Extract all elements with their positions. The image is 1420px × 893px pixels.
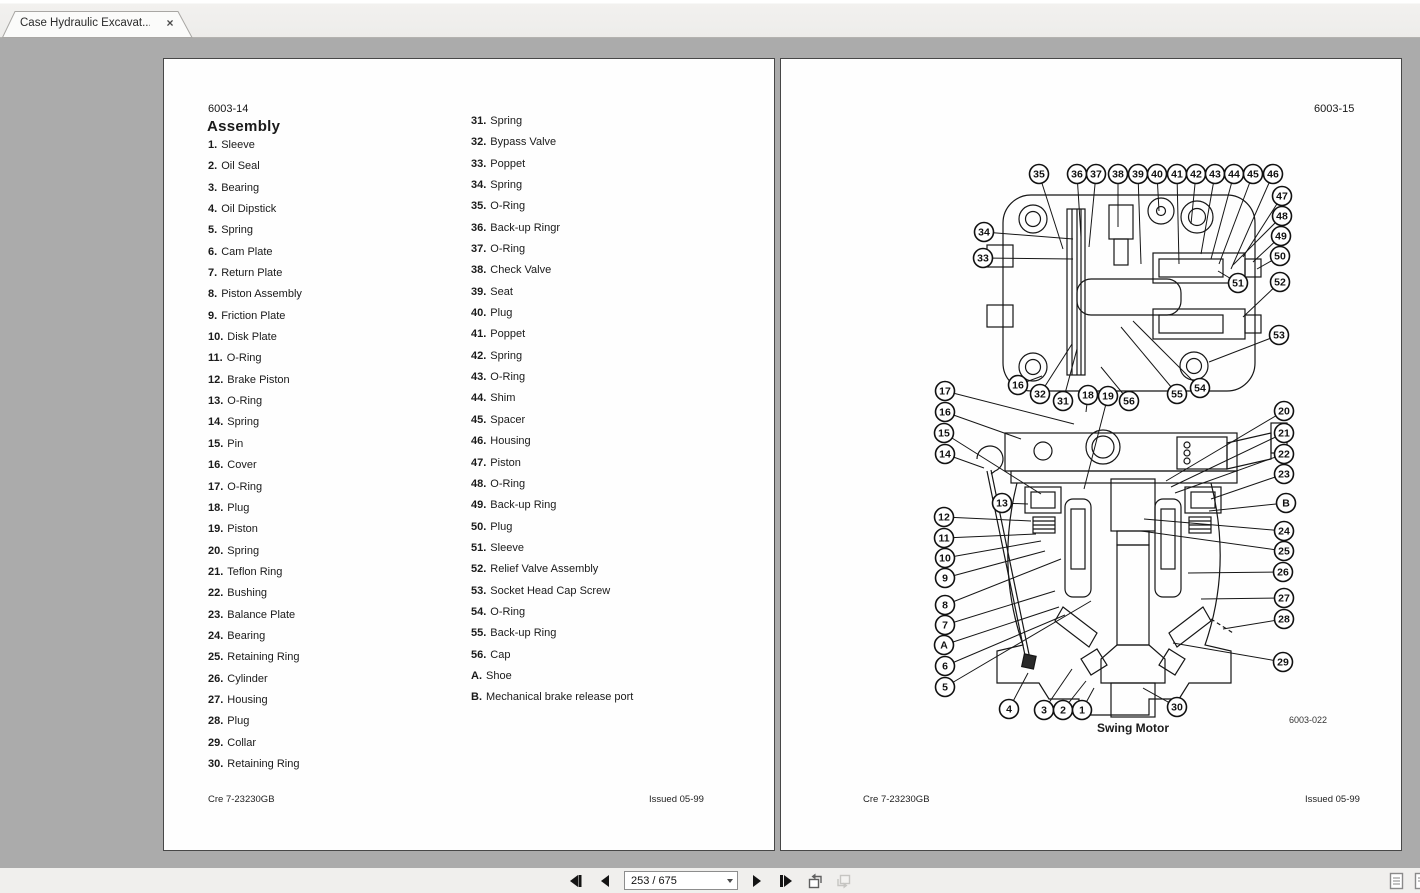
part-number: 3. [208,182,217,194]
callout-label: 6 [942,661,948,673]
part-label: Sleeve [490,542,524,554]
callout-label: 32 [1034,389,1046,401]
part-number: 46. [471,435,486,447]
part-item: 23.Balance Plate [208,609,302,630]
part-label: Plug [227,502,249,514]
part-number: 21. [208,566,223,578]
part-number: 4. [208,203,217,215]
part-number: 56. [471,649,486,661]
facing-pages-view-button[interactable] [1412,871,1420,890]
part-number: 41. [471,328,486,340]
part-label: Return Plate [221,267,282,279]
next-view-button[interactable] [834,871,854,891]
part-number: 30. [208,758,223,770]
callout-label: 18 [1082,390,1094,402]
part-label: Poppet [490,158,525,170]
part-item: 47.Piston [471,457,633,478]
part-label: Back-up Ringr [490,222,560,234]
callout-label: 33 [977,253,989,265]
part-label: Plug [227,715,249,727]
part-number: 43. [471,371,486,383]
callout-label: 29 [1277,657,1289,669]
part-item: 8.Piston Assembly [208,288,302,309]
part-number: 47. [471,457,486,469]
part-number: 38. [471,264,486,276]
part-item: 40.Plug [471,307,633,328]
part-number: 52. [471,563,486,575]
part-item: 15.Pin [208,438,302,459]
page-number-input[interactable] [625,873,723,888]
part-number: 50. [471,521,486,533]
callout-label: 13 [996,498,1008,510]
part-label: Cylinder [227,673,267,685]
callout-label: 38 [1112,169,1124,181]
part-item: 18.Plug [208,502,302,523]
part-label: O-Ring [227,352,262,364]
part-item: 19.Piston [208,523,302,544]
callout-label: 22 [1278,449,1290,461]
part-label: Mechanical brake release port [486,691,633,703]
callout-label: 51 [1232,278,1244,290]
part-number: 2. [208,160,217,172]
part-label: Socket Head Cap Screw [490,585,610,597]
part-item: 36.Back-up Ringr [471,222,633,243]
callout-label: 39 [1132,169,1144,181]
part-number: 23. [208,609,223,621]
facing-pages-view-icon [1414,872,1420,890]
part-label: Bearing [227,630,265,642]
part-label: Housing [490,435,530,447]
part-number: 51. [471,542,486,554]
part-label: Friction Plate [221,310,285,322]
callout-label: 11 [938,533,949,545]
callout-label: 43 [1209,169,1221,181]
callout-label: 1 [1079,705,1085,717]
part-number: 36. [471,222,486,234]
callout-label: 30 [1171,702,1183,714]
part-item: 14.Spring [208,416,302,437]
part-item: 39.Seat [471,286,633,307]
callout-leader-lines [944,174,1286,710]
callout-label: 35 [1033,169,1045,181]
part-number: 33. [471,158,486,170]
part-item: 29.Collar [208,737,302,758]
callout-label: 54 [1194,383,1206,395]
chevron-down-icon[interactable] [727,879,733,883]
part-number: 14. [208,416,223,428]
part-label: Plug [490,307,512,319]
part-number: 24. [208,630,223,642]
part-label: Housing [227,694,267,706]
part-label: Teflon Ring [227,566,282,578]
page-number-left: 6003-14 [208,103,248,115]
part-number: 5. [208,224,217,236]
callout-label: A [940,640,948,652]
skip-forward-button[interactable] [776,871,796,891]
part-number: 39. [471,286,486,298]
view-mode-controls [1387,871,1416,890]
page-nav-controls [566,868,854,893]
part-label: Cam Plate [221,246,272,258]
part-label: Oil Dipstick [221,203,276,215]
callout-label: 19 [1102,391,1114,403]
part-label: Collar [227,737,256,749]
part-item: 43.O-Ring [471,371,633,392]
part-label: Poppet [490,328,525,340]
part-item: 2.Oil Seal [208,160,302,181]
part-label: Balance Plate [227,609,295,621]
callout-label: 40 [1151,169,1163,181]
part-label: Check Valve [490,264,551,276]
callout-label: 16 [939,407,951,419]
part-number: 15. [208,438,223,450]
footer-doc-code: Cre 7-23230GB [208,794,275,805]
callout-label: 56 [1123,396,1135,408]
callout-label: 47 [1276,191,1288,203]
part-number: 44. [471,392,486,404]
part-label: Seat [490,286,513,298]
part-number: 32. [471,136,486,148]
part-number: 6. [208,246,217,258]
part-item: 33.Poppet [471,158,633,179]
part-number: 12. [208,374,223,386]
callout-label: 52 [1274,277,1286,289]
part-item: 7.Return Plate [208,267,302,288]
single-page-view-icon [1389,872,1404,890]
callout-label: 24 [1278,526,1290,538]
figure-code: 6003-022 [1289,715,1327,725]
part-item: 12.Brake Piston [208,374,302,395]
part-label: Bypass Valve [490,136,556,148]
part-item: 11.O-Ring [208,352,302,373]
part-label: Spring [227,545,259,557]
footer-doc-code: Cre 7-23230GB [863,794,930,805]
part-item: 24.Bearing [208,630,302,651]
part-label: O-Ring [227,395,262,407]
part-number: 31. [471,115,486,127]
callout-label: 16 [1012,380,1024,392]
document-tab[interactable]: Case Hydraulic Excavat... × [2,11,194,38]
part-label: Oil Seal [221,160,260,172]
part-item: 26.Cylinder [208,673,302,694]
part-number: 54. [471,606,486,618]
single-page-view-button[interactable] [1387,871,1405,890]
skip-forward-icon [778,874,794,888]
footer-issued: Issued 05-99 [1305,794,1360,805]
tab-close-icon[interactable]: × [162,15,178,31]
part-number: 8. [208,288,217,300]
part-item: 52.Relief Valve Assembly [471,563,633,584]
callout-label: 3 [1041,705,1047,717]
callout-label: B [1282,498,1290,510]
callout-label: 26 [1277,567,1289,579]
part-label: O-Ring [490,606,525,618]
part-number: 11. [208,352,223,364]
callout-bubbles: 3536373839404142434445464748495051525354… [935,165,1296,720]
part-number: 17. [208,481,223,493]
part-item: 5.Spring [208,224,302,245]
part-label: Bearing [221,182,259,194]
callout-label: 37 [1090,169,1102,181]
callout-label: 2 [1060,705,1066,717]
callout-label: 45 [1247,169,1259,181]
part-item: 32.Bypass Valve [471,136,633,157]
part-label: O-Ring [490,371,525,383]
part-number: 19. [208,523,223,535]
part-item: 56.Cap [471,649,633,670]
part-item: 13.O-Ring [208,395,302,416]
part-label: Bushing [227,587,267,599]
part-item: 31.Spring [471,115,633,136]
part-number: 10. [208,331,223,343]
part-item: 48.O-Ring [471,478,633,499]
part-label: Shoe [486,670,512,682]
part-number: 34. [471,179,486,191]
part-item: 44.Shim [471,392,633,413]
part-number: 22. [208,587,223,599]
pdf-canvas: 6003-14 Assembly 1.Sleeve 2.Oil Seal 3.B… [0,38,1420,868]
part-label: Pin [227,438,243,450]
page-left: 6003-14 Assembly 1.Sleeve 2.Oil Seal 3.B… [163,58,775,851]
part-label: Piston Assembly [221,288,302,300]
callout-label: 14 [939,449,951,461]
part-item: 3.Bearing [208,182,302,203]
part-label: Back-up Ring [490,627,556,639]
part-label: Plug [490,521,512,533]
next-view-icon [835,872,853,890]
part-item: 30.Retaining Ring [208,758,302,779]
part-number: 37. [471,243,486,255]
part-number: 48. [471,478,486,490]
callout-label: 9 [942,573,948,585]
part-item: 1.Sleeve [208,139,302,160]
previous-view-button[interactable] [805,871,825,891]
part-item: 34.Spring [471,179,633,200]
part-item: 27.Housing [208,694,302,715]
figure-caption: Swing Motor [1088,721,1178,735]
part-item: 37.O-Ring [471,243,633,264]
page-number-box[interactable] [624,871,738,890]
callout-label: 27 [1278,593,1290,605]
part-item: 9.Friction Plate [208,310,302,331]
part-label: O-Ring [227,481,262,493]
callout-label: 25 [1278,546,1290,558]
part-label: Spring [221,224,253,236]
part-item: 49.Back-up Ring [471,499,633,520]
callout-label: 53 [1273,330,1285,342]
callout-label: 7 [942,620,948,632]
previous-view-icon [806,872,824,890]
part-label: Spring [490,350,522,362]
footer-issued: Issued 05-99 [649,794,704,805]
part-label: O-Ring [490,200,525,212]
part-label: Retaining Ring [227,758,299,770]
next-page-icon [751,874,763,888]
part-number: 42. [471,350,486,362]
next-page-button[interactable] [747,871,767,891]
part-number: 53. [471,585,486,597]
prev-page-icon [599,874,611,888]
part-number: 26. [208,673,223,685]
part-number: 28. [208,715,223,727]
part-number: 25. [208,651,223,663]
part-item: 46.Housing [471,435,633,456]
part-label: Retaining Ring [227,651,299,663]
tab-title: Case Hydraulic Excavat... [20,17,150,29]
callout-label: 12 [938,512,950,524]
navigation-toolbar [0,868,1420,893]
app-window: { "tab": { "title": "Case Hydraulic Exca… [0,0,1420,893]
part-item: B.Mechanical brake release port [471,691,633,712]
part-number: A. [471,670,482,682]
callout-label: 34 [978,227,990,239]
part-item: 54.O-Ring [471,606,633,627]
part-item: 45.Spacer [471,414,633,435]
part-label: Disk Plate [227,331,277,343]
tab-bar: Case Hydraulic Excavat... × [0,0,1420,38]
part-item: 42.Spring [471,350,633,371]
part-label: Cap [490,649,510,661]
part-item: 55.Back-up Ring [471,627,633,648]
part-label: O-Ring [490,243,525,255]
part-number: 13. [208,395,223,407]
callout-label: 4 [1006,704,1012,716]
part-number: 20. [208,545,223,557]
callout-label: 48 [1276,211,1288,223]
callout-label: 41 [1171,169,1183,181]
callout-label: 55 [1171,389,1183,401]
part-number: 40. [471,307,486,319]
part-number: 9. [208,310,217,322]
part-number: 35. [471,200,486,212]
part-label: Shim [490,392,515,404]
part-label: Spring [490,115,522,127]
part-number: 29. [208,737,223,749]
part-label: Piston [490,457,521,469]
part-number: 45. [471,414,486,426]
section-title: Assembly [207,118,280,135]
part-item: 21.Teflon Ring [208,566,302,587]
callout-label: 5 [942,682,948,694]
part-item: 17.O-Ring [208,481,302,502]
skip-back-button[interactable] [566,871,586,891]
part-number: 16. [208,459,223,471]
part-label: Piston [227,523,258,535]
part-item: 22.Bushing [208,587,302,608]
part-item: 10.Disk Plate [208,331,302,352]
callout-label: 21 [1278,428,1290,440]
part-item: A.Shoe [471,670,633,691]
parts-list-col1: 1.Sleeve 2.Oil Seal 3.Bearing 4.Oil Dips… [208,139,302,779]
part-item: 6.Cam Plate [208,246,302,267]
parts-list-col2: 31.Spring 32.Bypass Valve 33.Poppet 34.S… [471,115,633,713]
part-item: 20.Spring [208,545,302,566]
part-label: Spring [227,416,259,428]
part-item: 53.Socket Head Cap Screw [471,585,633,606]
callout-label: 17 [939,386,951,398]
part-number: 1. [208,139,217,151]
callout-label: 46 [1267,169,1279,181]
part-label: Back-up Ring [490,499,556,511]
callout-label: 20 [1278,406,1290,418]
part-label: Sleeve [221,139,255,151]
part-label: O-Ring [490,478,525,490]
part-number: 7. [208,267,217,279]
callout-label: 10 [939,553,951,565]
part-number: 55. [471,627,486,639]
callout-label: 50 [1274,251,1286,263]
callout-label: 28 [1278,614,1290,626]
part-item: 38.Check Valve [471,264,633,285]
part-item: 28.Plug [208,715,302,736]
part-item: 51.Sleeve [471,542,633,563]
part-label: Spring [490,179,522,191]
callout-label: 8 [942,600,948,612]
page-right: 6003-15 [780,58,1402,851]
prev-page-button[interactable] [595,871,615,891]
part-label: Brake Piston [227,374,289,386]
part-label: Relief Valve Assembly [490,563,598,575]
part-number: B. [471,691,482,703]
part-item: 16.Cover [208,459,302,480]
callout-label: 31 [1057,396,1069,408]
callout-label: 44 [1228,169,1240,181]
part-item: 25.Retaining Ring [208,651,302,672]
part-number: 27. [208,694,223,706]
part-item: 4.Oil Dipstick [208,203,302,224]
part-label: Spacer [490,414,525,426]
part-item: 41.Poppet [471,328,633,349]
callout-label: 15 [938,428,950,440]
callout-label: 36 [1071,169,1083,181]
skip-back-icon [568,874,584,888]
part-number: 49. [471,499,486,511]
part-label: Cover [227,459,256,471]
part-item: 50.Plug [471,521,633,542]
callout-label: 42 [1190,169,1202,181]
callout-label: 49 [1275,231,1287,243]
callout-label: 23 [1278,469,1290,481]
part-number: 18. [208,502,223,514]
part-item: 35.O-Ring [471,200,633,221]
